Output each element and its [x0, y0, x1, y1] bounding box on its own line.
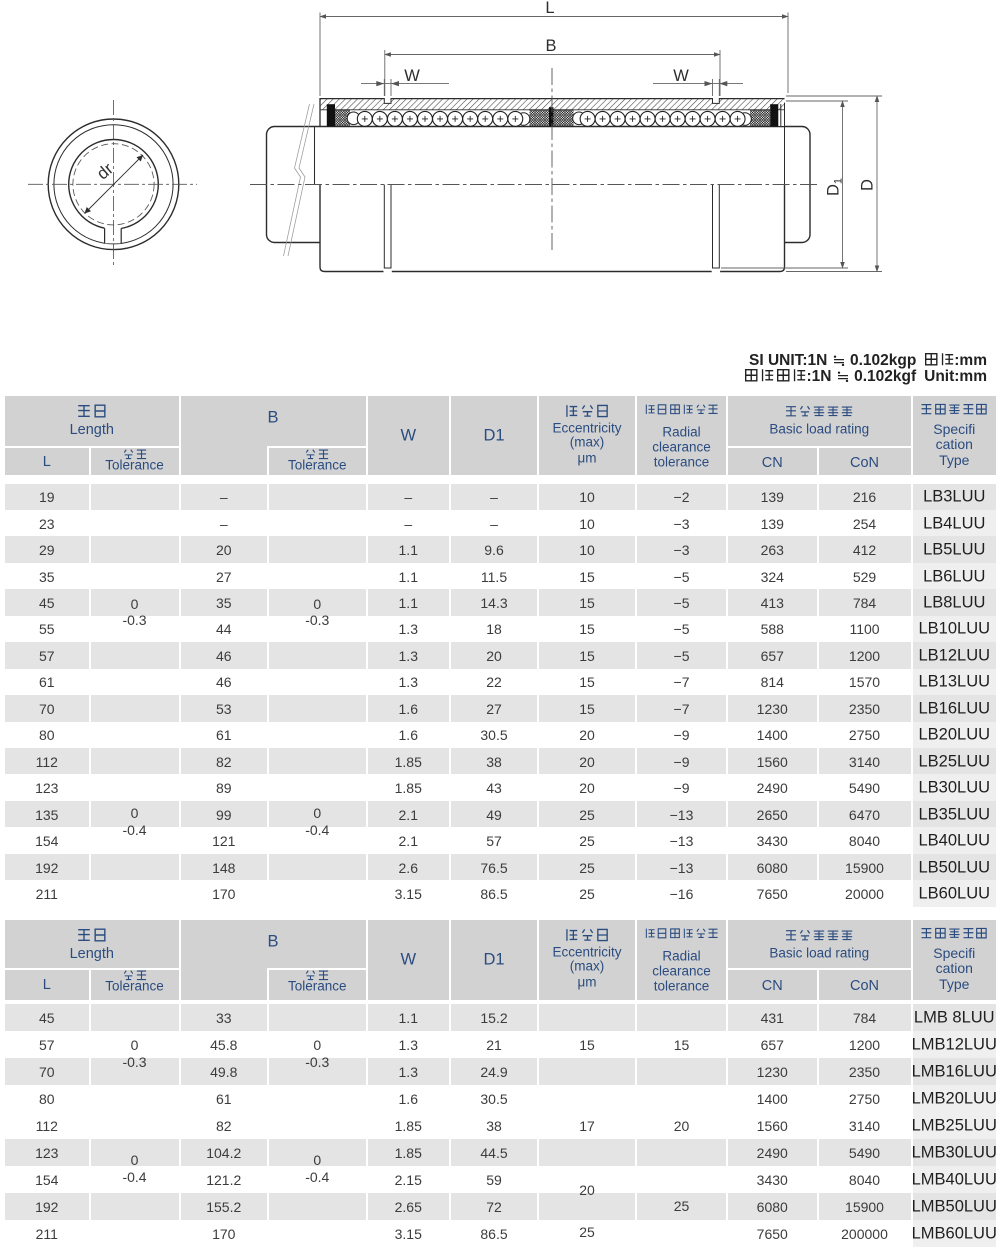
- svg-text:D: D: [859, 179, 877, 191]
- svg-text:L: L: [545, 0, 554, 17]
- svg-text:W: W: [404, 67, 420, 85]
- svg-text:W: W: [673, 67, 689, 85]
- svg-text:D1: D1: [825, 178, 845, 196]
- svg-text:B: B: [545, 37, 556, 55]
